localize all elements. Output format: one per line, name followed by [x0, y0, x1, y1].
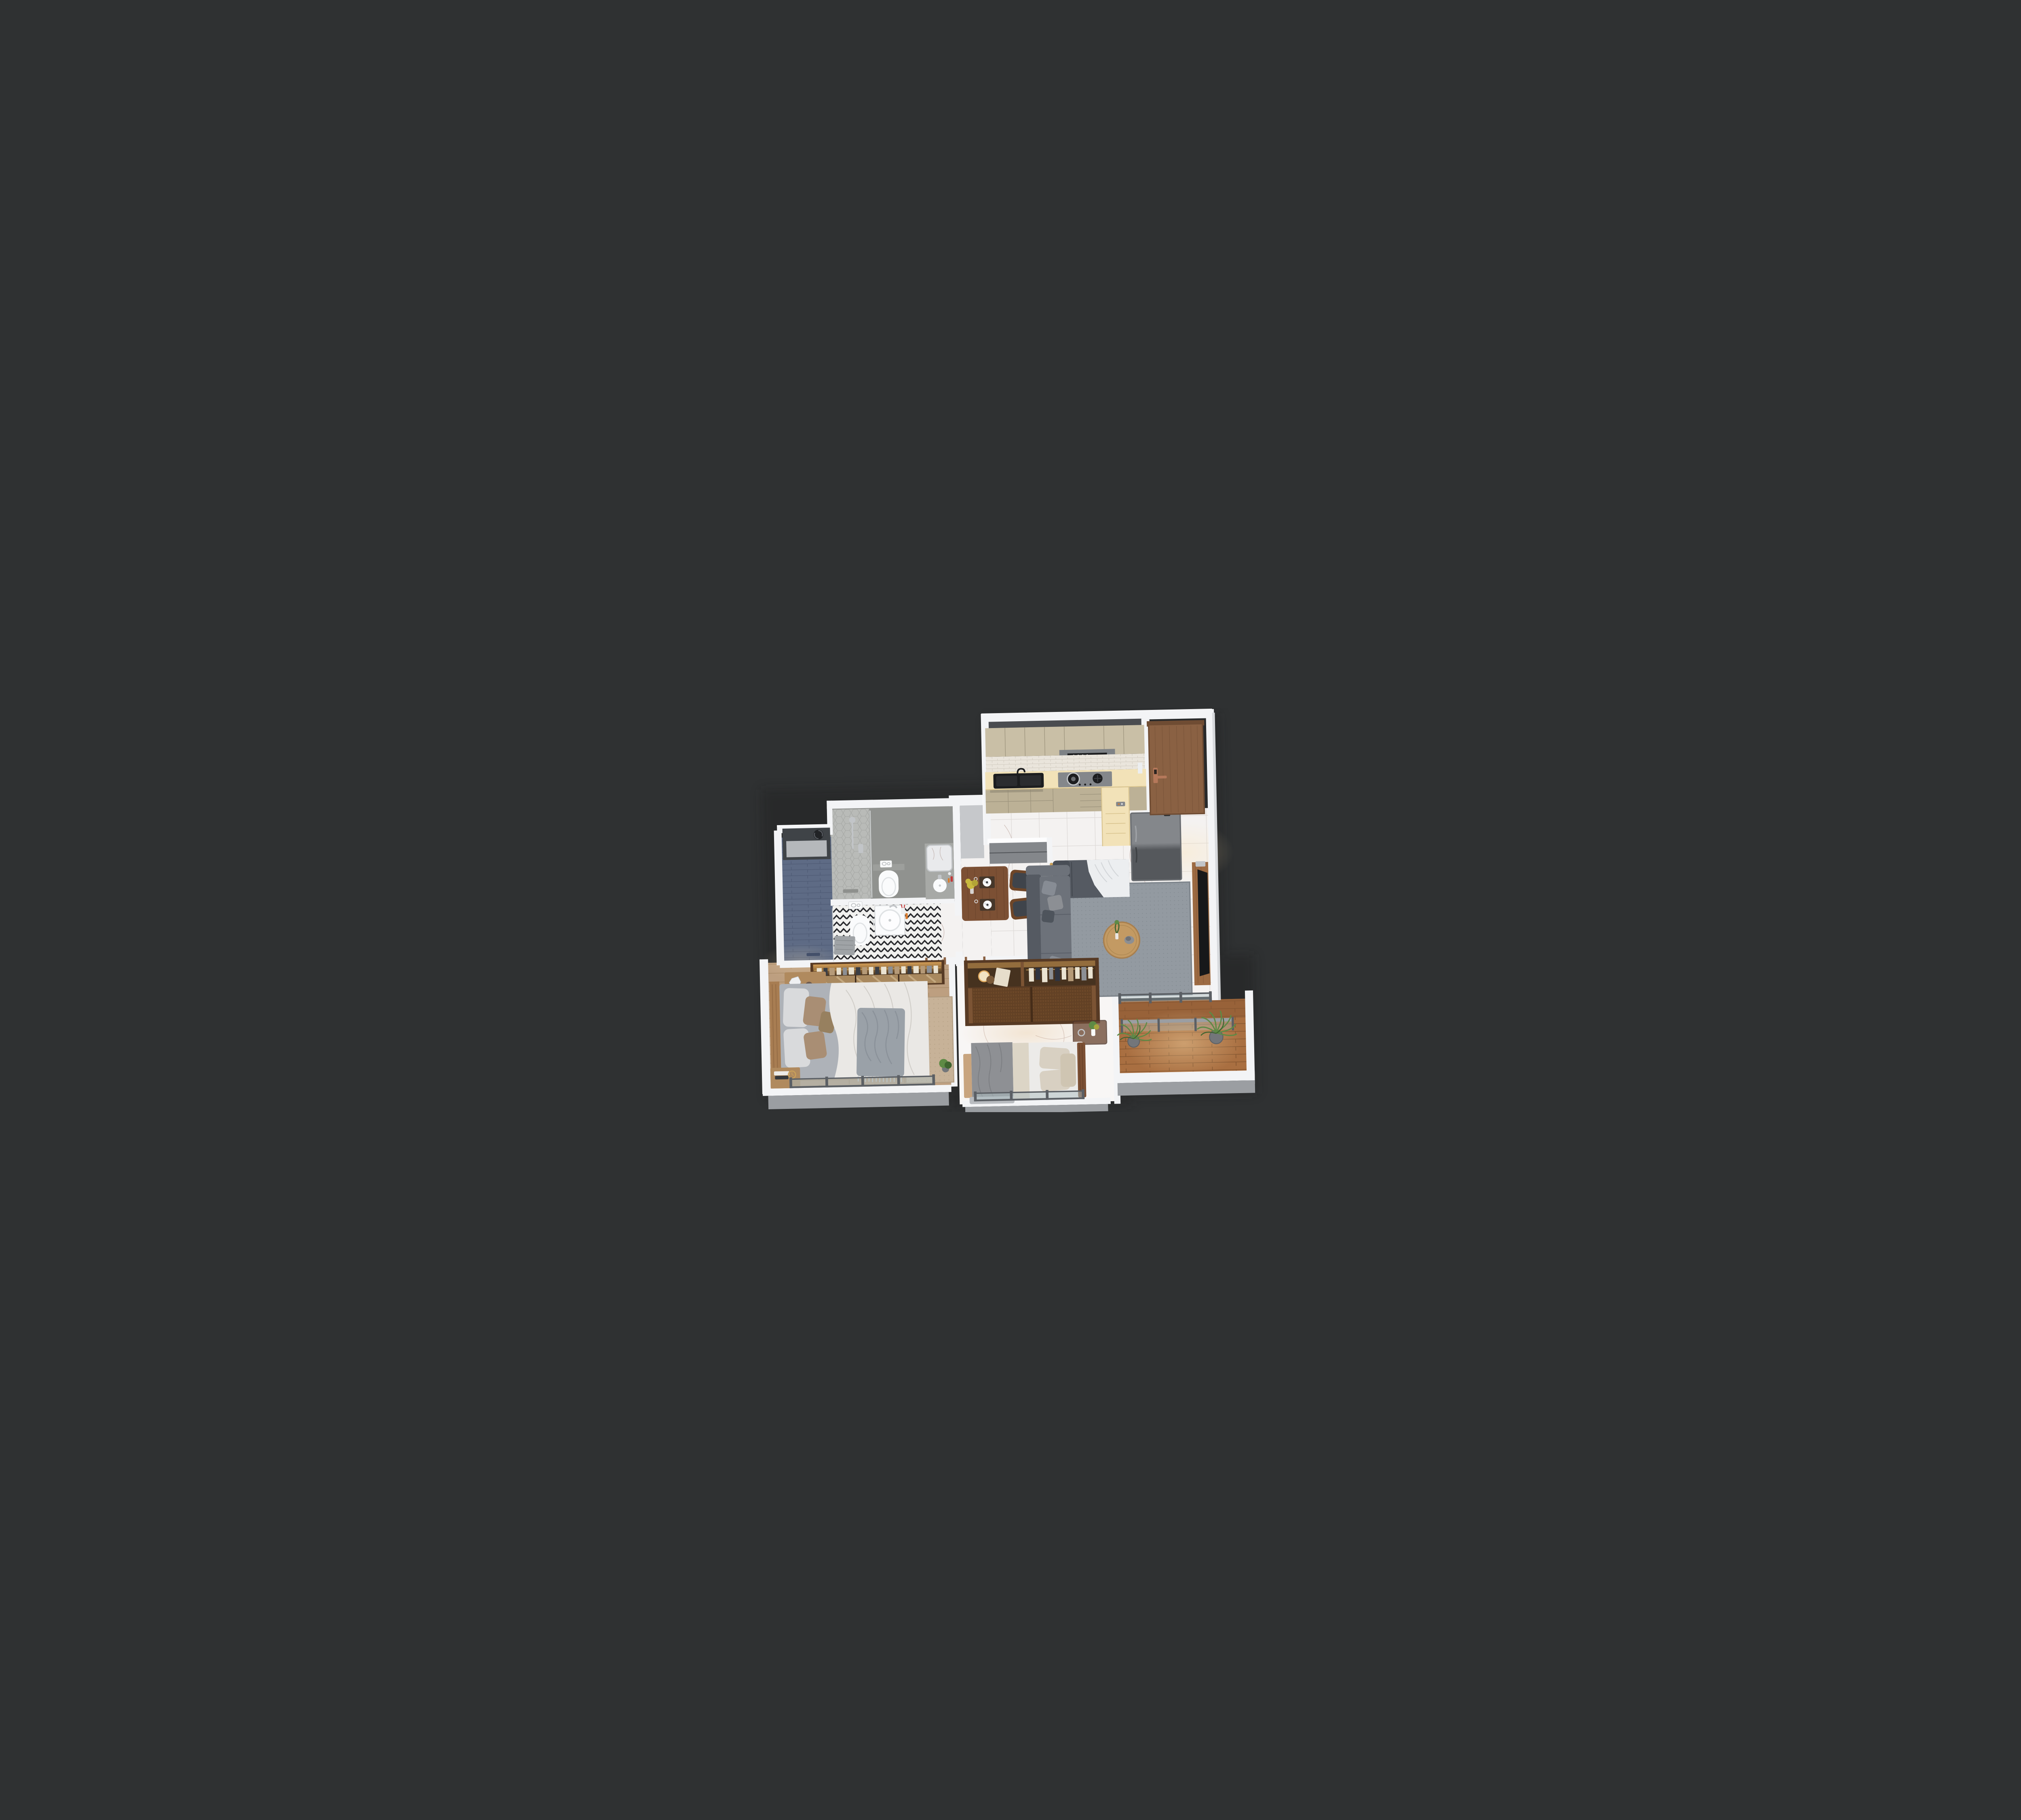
shower-mixer [858, 844, 863, 853]
mirror-1 [926, 845, 952, 872]
counter-return [1101, 787, 1131, 846]
door-handle [1157, 775, 1167, 778]
gas-hob [1058, 771, 1112, 787]
master-bedroom [768, 960, 954, 1088]
shower2-drain [806, 952, 820, 956]
beige-runner [1013, 1043, 1030, 1100]
entrance [1147, 720, 1206, 815]
books-2 [774, 1071, 789, 1075]
basin-unit-2 [875, 904, 908, 935]
hanging-towel [1138, 762, 1143, 773]
wardrobe-divider [1021, 962, 1024, 986]
sink-bowl-right [1020, 775, 1041, 786]
shower-drain [843, 889, 858, 893]
gray-knit-throw [856, 1008, 905, 1083]
faucet-1 [938, 874, 941, 879]
lotion-bottle [905, 913, 908, 919]
glass-nightstand [1073, 1020, 1107, 1044]
fridge [1131, 805, 1181, 880]
floor-plan-svg [651, 708, 1370, 1113]
vanity-1 [925, 843, 955, 899]
toilet-bowl-1 [878, 870, 899, 897]
headboard-2 [1077, 1042, 1086, 1097]
spice-tray [1116, 802, 1125, 807]
shower-window-unit [783, 828, 831, 860]
sink-bowl-left [996, 775, 1017, 786]
wall-face-dining-north [960, 805, 985, 858]
rattan-wardrobe [964, 958, 1100, 1026]
headboard [770, 981, 781, 1077]
soundbar [1196, 861, 1206, 867]
frosted-pane [786, 840, 827, 857]
tv-wall [1192, 861, 1211, 985]
peninsula-end-column [1047, 837, 1053, 864]
render-canvas [651, 708, 1370, 1113]
